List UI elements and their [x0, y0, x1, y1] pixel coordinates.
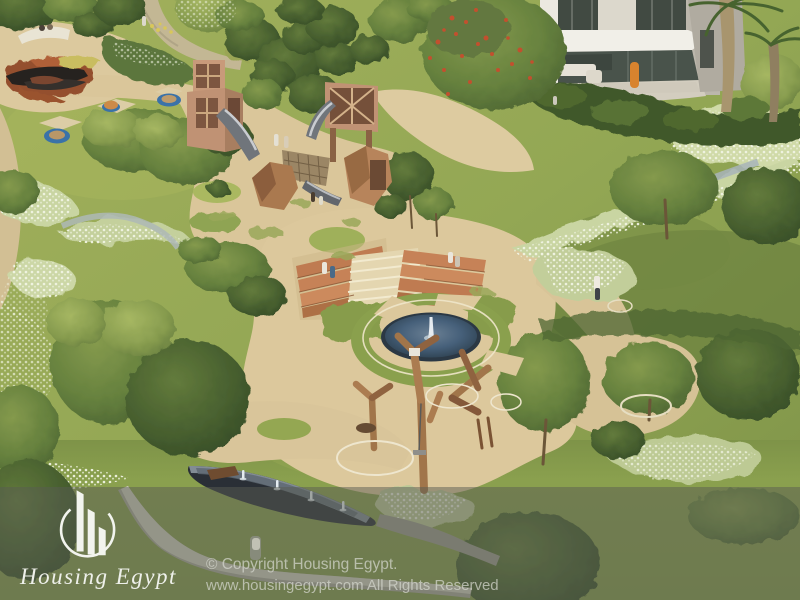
svg-text:© Copyright Housing Egypt.: © Copyright Housing Egypt.	[206, 556, 398, 573]
svg-text:www.housingegypt.com All Right: www.housingegypt.com All Rights Reserved	[205, 577, 499, 594]
svg-text:Housing Egypt: Housing Egypt	[19, 564, 177, 589]
